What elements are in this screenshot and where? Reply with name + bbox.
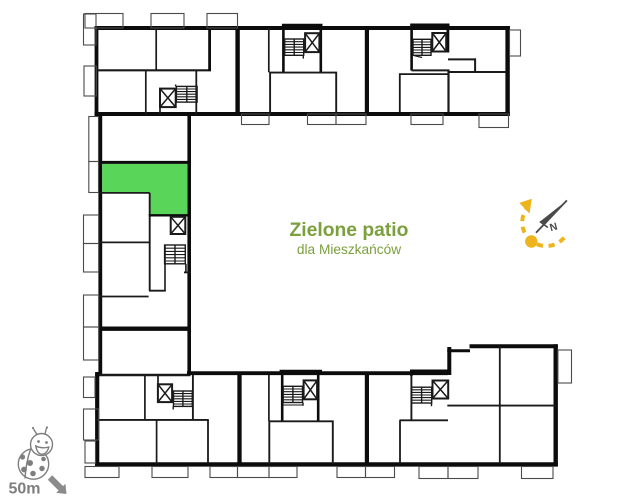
svg-text:50m: 50m — [9, 480, 41, 497]
svg-text:N: N — [548, 221, 558, 235]
